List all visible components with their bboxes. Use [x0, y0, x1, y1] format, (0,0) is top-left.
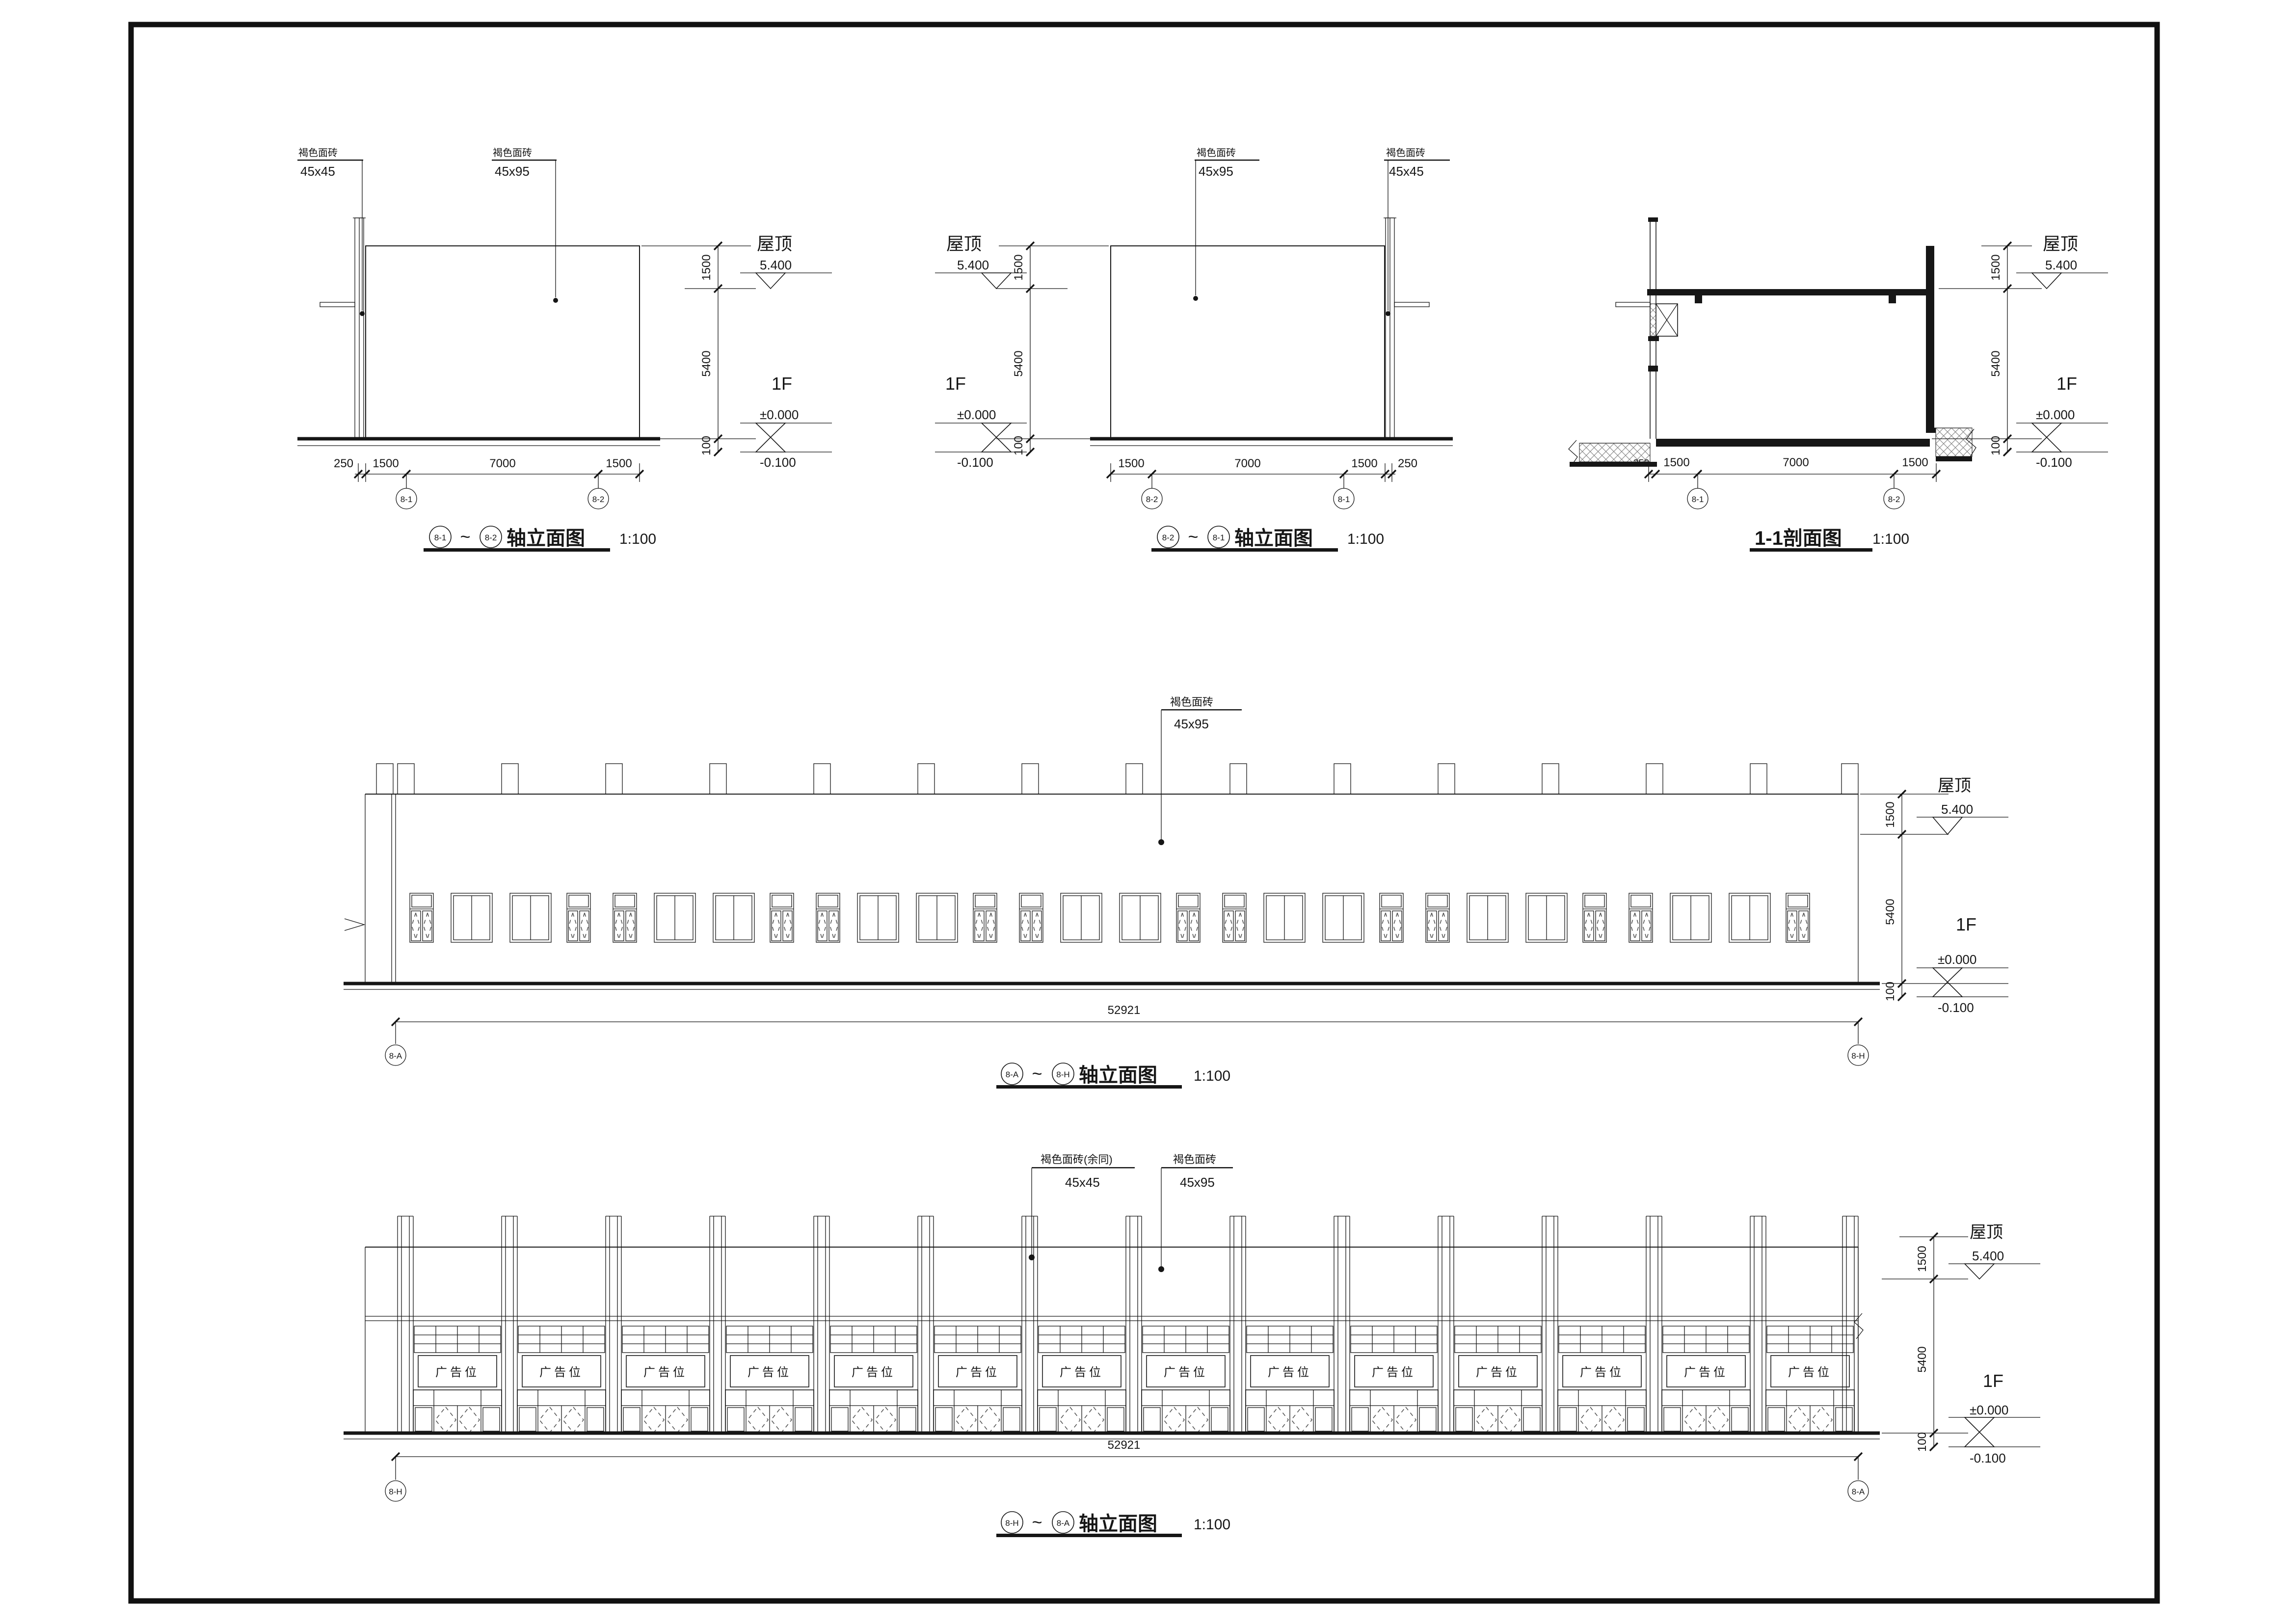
ad-sign: 广告位	[1164, 1366, 1208, 1379]
dim-250: 250	[1398, 457, 1417, 470]
window-row	[410, 893, 1810, 942]
drawing-frame	[131, 25, 2157, 1601]
level-markers-left: 1500 5400 100 屋顶 5.400 1F ±0.000 -0.100	[935, 234, 1109, 470]
level-triangle	[982, 273, 1011, 289]
ad-sign: 广告位	[1684, 1366, 1728, 1379]
dim-1500: 1500	[373, 457, 399, 470]
ad-sign: 广告位	[1580, 1366, 1624, 1379]
zero-marker	[1933, 968, 1962, 997]
below-level: -0.100	[1938, 1000, 1974, 1015]
dim-5400-vert: 5400	[1916, 1346, 1929, 1372]
view-title: 8-A ~ 8-H 轴立面图 1:100	[996, 1063, 1230, 1089]
dim-1500: 1500	[1902, 456, 1928, 469]
wall-insulation	[1650, 304, 1656, 336]
title-axis-from: 8-1	[434, 533, 447, 542]
below-level: -0.100	[2036, 455, 2072, 470]
dim-7000: 7000	[1234, 457, 1260, 470]
dim-250: 250	[1633, 458, 1649, 469]
title-underline	[1750, 548, 1872, 552]
roof-elevation-value: 5.400	[1972, 1249, 2004, 1263]
roof-slab	[1656, 289, 1928, 295]
material-label: 褐色面砖	[493, 147, 532, 159]
leader-dot	[1386, 311, 1390, 316]
dim-total: 52921	[1108, 1438, 1141, 1452]
right-footing	[1926, 428, 1976, 461]
tile-size-label: 45x95	[1199, 164, 1233, 179]
axis-8-2: 8-2	[1146, 495, 1158, 504]
floor-1F-label: 1F	[1983, 1371, 2003, 1391]
roof-elevation-value: 5.400	[760, 258, 792, 272]
break-mark	[1854, 1313, 1863, 1339]
axis-8-1: 8-1	[1692, 495, 1704, 504]
ad-sign: 广告位	[643, 1366, 688, 1379]
roof-label: 屋顶	[1938, 776, 1971, 795]
dim-7000: 7000	[489, 457, 515, 470]
roof-beam	[1695, 295, 1702, 303]
leader-dot	[360, 311, 365, 316]
corner-pilaster	[353, 218, 366, 439]
dim-1500-vert: 1500	[1989, 254, 2002, 280]
floor-1F-label: 1F	[772, 373, 792, 394]
leader-dot	[1193, 296, 1198, 301]
roof-elevation-value: 5.400	[957, 258, 989, 272]
roof-elevation-value: 5.400	[1941, 802, 1973, 817]
title-axis-to: 8-A	[1057, 1518, 1070, 1528]
corner-pilaster	[1384, 218, 1396, 439]
zero-marker	[1965, 1417, 1994, 1447]
elevation-8-H-to-8-A: 广告位 广告位 广告位 广告位 广告位 广告位 广告位 广告位 广告位 广告位 …	[344, 1153, 2040, 1537]
ad-sign: 广告位	[1268, 1366, 1312, 1379]
level-markers-right: 1500 5400 100 屋顶 5.400 1F ±0.000 -0.100	[1882, 1223, 2040, 1465]
axis-bubbles: 8-1 8-2	[1687, 474, 1904, 509]
material-label: 褐色面砖	[1170, 696, 1213, 708]
leader-dot	[1158, 839, 1164, 845]
tile-size-label: 45x95	[1174, 717, 1209, 731]
break-mark	[345, 919, 364, 931]
title-underline	[424, 548, 610, 552]
tile-size-label: 45x45	[300, 164, 335, 179]
title-scale: 1:100	[1194, 1517, 1230, 1533]
tile-size-label: 45x95	[495, 164, 530, 179]
elevation-8-A-to-8-H: 褐色面砖 45x95 52921 8-A 8-H 1500 5400 100 屋…	[344, 696, 2008, 1089]
material-label: 褐色面砖	[298, 147, 338, 159]
tile-label-45x95: 褐色面砖 45x95	[1158, 1153, 1233, 1272]
bottom-dimension-chain: 1500 7000 1500 250	[1107, 457, 1417, 482]
zero-level: ±0.000	[1938, 952, 1976, 967]
right-wall-section	[1926, 246, 1934, 431]
tile-label-45x45-rest: 褐色面砖(余同) 45x45	[1029, 1153, 1135, 1260]
dim-5400-vert: 5400	[1989, 350, 2002, 376]
axis-8-A: 8-A	[1852, 1487, 1865, 1496]
dim-1500-vert: 1500	[1012, 254, 1025, 280]
canopy	[1394, 302, 1429, 307]
level-triangle	[1933, 817, 1962, 834]
title-text: 1-1剖面图	[1755, 528, 1842, 549]
title-text: 轴立面图	[1079, 1513, 1157, 1535]
dim-1500: 1500	[1351, 457, 1377, 470]
axis-8-2: 8-2	[1888, 495, 1900, 504]
title-scale: 1:100	[619, 531, 656, 547]
zero-level: ±0.000	[1970, 1403, 2008, 1417]
axis-bubbles: 8-2 8-1	[1142, 474, 1354, 509]
title-axis-to: 8-2	[485, 533, 497, 542]
section-1-1: 250 1500 7000 1500 8-1 8-2 1500 5400 100…	[1569, 217, 2108, 552]
dim-100-vert: 100	[1916, 1432, 1929, 1452]
leader-dot	[1158, 1266, 1164, 1272]
below-level: -0.100	[1970, 1451, 2006, 1465]
dim-1500: 1500	[1118, 457, 1144, 470]
bottom-dimension-chain: 250 1500 7000 1500	[334, 457, 643, 482]
floor-1F-label: 1F	[1956, 914, 1976, 934]
zero-level: ±0.000	[2036, 407, 2075, 422]
zero-level: ±0.000	[760, 407, 799, 422]
tilde: ~	[1032, 1064, 1042, 1084]
dim-5400-vert: 5400	[700, 350, 713, 376]
material-label: 褐色面砖	[1173, 1153, 1216, 1166]
zero-marker	[982, 423, 1011, 452]
roof-label: 屋顶	[946, 234, 982, 254]
shop-bays	[413, 1326, 1854, 1433]
title-text: 轴立面图	[1079, 1065, 1157, 1086]
tile-size-label: 45x45	[1065, 1175, 1100, 1190]
tile-size-label: 45x45	[1389, 164, 1424, 179]
floor-1F-label: 1F	[945, 373, 966, 394]
axis-8-H: 8-H	[389, 1487, 402, 1496]
tilde: ~	[1032, 1512, 1042, 1532]
title-axis-to: 8-1	[1213, 533, 1225, 542]
title-scale: 1:100	[1194, 1068, 1230, 1084]
material-label: 褐色面砖(余同)	[1041, 1153, 1113, 1166]
roof-label: 屋顶	[2043, 234, 2078, 254]
pilasters	[398, 1216, 1858, 1433]
axis-bubbles: 8-1 8-2	[396, 474, 609, 509]
view-title: 8-2 ~ 8-1 轴立面图 1:100	[1151, 526, 1384, 552]
zero-marker	[756, 423, 785, 452]
cad-sheet: 褐色面砖 45x45 褐色面砖 45x95 250 1500 7000 1500…	[0, 0, 2296, 1624]
ad-sign: 广告位	[956, 1366, 1000, 1379]
level-markers-right: 1500 5400 100 屋顶 5.400 1F ±0.000 -0.100	[641, 234, 832, 470]
canopy	[320, 302, 355, 307]
canopy-section	[1616, 302, 1650, 307]
tile-label-45x95: 褐色面砖 45x95	[1158, 696, 1242, 845]
title-underline	[996, 1085, 1182, 1089]
level-triangle	[1965, 1264, 1994, 1279]
dim-1500: 1500	[1663, 456, 1689, 469]
title-text: 轴立面图	[1234, 528, 1313, 549]
view-title: 8-1 ~ 8-2 轴立面图 1:100	[424, 526, 656, 552]
axis-8-1: 8-1	[1338, 495, 1350, 504]
below-level: -0.100	[957, 455, 993, 470]
dim-5400-vert: 5400	[1884, 899, 1897, 925]
title-axis-to: 8-H	[1056, 1070, 1069, 1079]
material-label: 褐色面砖	[1197, 147, 1236, 159]
leader-dot	[553, 298, 558, 303]
title-scale: 1:100	[1872, 531, 1909, 547]
title-axis-from: 8-H	[1005, 1518, 1018, 1528]
dim-5400-vert: 5400	[1012, 350, 1025, 376]
axis-8-H: 8-H	[1851, 1051, 1865, 1061]
zero-marker	[2032, 423, 2061, 452]
building-outline	[1111, 246, 1385, 439]
tilde: ~	[460, 527, 470, 547]
dim-7000: 7000	[1783, 456, 1809, 469]
elevation-8-2-to-8-1: 褐色面砖 45x95 褐色面砖 45x45 1500 7000 1500 250…	[935, 147, 1453, 552]
parapet-posts	[376, 764, 1858, 794]
ad-sign: 广告位	[539, 1366, 584, 1379]
tile-label-45x95: 褐色面砖 45x95	[1193, 147, 1259, 301]
title-underline	[996, 1534, 1182, 1537]
tile-label-45x95: 褐色面砖 45x95	[492, 147, 558, 303]
roof-beam	[1889, 295, 1896, 303]
floor-1F-label: 1F	[2056, 373, 2077, 394]
dim-1500-vert: 1500	[1884, 801, 1897, 827]
ad-sign: 广告位	[1476, 1366, 1520, 1379]
ad-sign-labels: 广告位 广告位 广告位 广告位 广告位 广告位 广告位 广告位 广告位 广告位 …	[435, 1366, 1832, 1379]
axis-8-A: 8-A	[389, 1051, 402, 1061]
view-title: 1-1剖面图 1:100	[1750, 528, 1909, 552]
dim-1500-vert: 1500	[700, 254, 713, 280]
dim-250: 250	[334, 457, 353, 470]
axis-8-1: 8-1	[400, 495, 413, 504]
elevation-8-1-to-8-2: 褐色面砖 45x45 褐色面砖 45x95 250 1500 7000 1500…	[297, 147, 832, 552]
title-underline	[1151, 548, 1338, 552]
roof-label: 屋顶	[757, 234, 792, 254]
ad-sign: 广告位	[852, 1366, 896, 1379]
total-dimension: 52921	[392, 1004, 1862, 1044]
leader-dot	[1029, 1254, 1035, 1260]
dim-total: 52921	[1108, 1004, 1141, 1017]
dim-1500-vert: 1500	[1916, 1246, 1929, 1272]
axis-bubbles: 8-H 8-A	[385, 1481, 1869, 1501]
below-level: -0.100	[760, 455, 796, 470]
tile-label-45x45: 褐色面砖 45x45	[1384, 147, 1450, 316]
floor-slab	[1656, 439, 1930, 447]
ad-sign: 广告位	[748, 1366, 792, 1379]
roof-elevation-value: 5.400	[2045, 258, 2077, 272]
title-axis-from: 8-2	[1162, 533, 1175, 542]
view-title: 8-H ~ 8-A 轴立面图 1:100	[996, 1512, 1230, 1537]
level-markers-right: 1500 5400 100 屋顶 5.400 1F ±0.000 -0.100	[1860, 776, 2008, 1015]
tile-size-label: 45x95	[1180, 1175, 1215, 1190]
ad-sign: 广告位	[1060, 1366, 1104, 1379]
ad-sign: 广告位	[435, 1366, 480, 1379]
section-walls	[1616, 217, 1934, 447]
level-triangle	[2032, 273, 2061, 289]
axis-bubbles: 8-A 8-H	[385, 1045, 1869, 1065]
title-scale: 1:100	[1347, 531, 1384, 547]
title-axis-from: 8-A	[1006, 1070, 1019, 1079]
dim-100-vert: 100	[1884, 982, 1897, 1001]
zero-level: ±0.000	[957, 407, 996, 422]
ad-sign: 广告位	[1788, 1366, 1832, 1379]
dim-1500: 1500	[606, 457, 632, 470]
axis-8-2: 8-2	[592, 495, 605, 504]
material-label: 褐色面砖	[1386, 147, 1425, 159]
building-outline	[366, 246, 640, 439]
level-triangle	[756, 273, 785, 289]
tilde: ~	[1188, 527, 1198, 547]
roof-label: 屋顶	[1970, 1223, 2003, 1242]
ad-sign: 广告位	[1372, 1366, 1416, 1379]
total-dimension: 52921	[392, 1438, 1862, 1480]
title-text: 轴立面图	[507, 528, 585, 549]
